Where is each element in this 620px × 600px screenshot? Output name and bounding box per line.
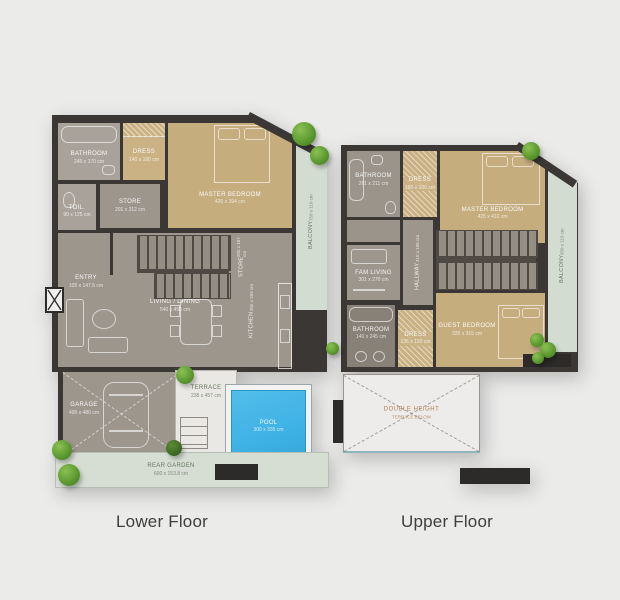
room-label: BATHROOM 140 x 245 cm bbox=[347, 327, 395, 341]
room-name: DRESS bbox=[123, 149, 165, 157]
sink-icon bbox=[355, 351, 367, 362]
room-label: MASTER BEDROOM 425 x 410 cm bbox=[440, 207, 545, 221]
upper-floor-caption: Upper Floor bbox=[347, 512, 547, 532]
room-name: GUEST BEDROOM bbox=[436, 323, 498, 331]
tree-icon bbox=[522, 142, 540, 160]
room-name: FAM LIVING bbox=[347, 270, 400, 278]
pillow-icon bbox=[522, 308, 540, 318]
upper-hall bbox=[347, 220, 400, 242]
car-windshield bbox=[109, 394, 143, 396]
room-toilet: TOIL. 90 x 125 cm bbox=[58, 184, 96, 230]
sofa-icon bbox=[351, 249, 387, 264]
room-master-bedroom: MASTER BEDROOM 420 x 394 cm bbox=[168, 123, 292, 228]
room-label: TOIL. 90 x 125 cm bbox=[58, 205, 96, 219]
toilet-icon bbox=[63, 192, 75, 208]
room-label: DOUBLE HEIGHT TERRACE BELOW bbox=[344, 406, 479, 419]
room-dims: 301 x 270 cm bbox=[347, 277, 400, 284]
room-name: BATHROOM bbox=[58, 151, 120, 159]
room-dims: 205 x 187 cm bbox=[236, 233, 248, 257]
room-label: FAM LIVING 301 x 270 cm bbox=[347, 270, 400, 284]
room-dress-lower: DRESS 135 x 120 cm bbox=[398, 310, 433, 367]
pillow-icon bbox=[218, 128, 240, 140]
room-bathroom-lower: BATHROOM 140 x 245 cm bbox=[347, 305, 395, 367]
bathtub-icon bbox=[349, 159, 364, 201]
bathtub-icon bbox=[61, 126, 117, 143]
room-name: KITCHEN bbox=[249, 311, 256, 337]
rear-garden: REAR GARDEN 600 x 153.8 cm bbox=[55, 452, 329, 488]
room-name: STORE bbox=[100, 199, 160, 207]
room-label: BALCONY 950 x 110 cm bbox=[548, 159, 577, 352]
toilet-icon bbox=[385, 201, 396, 214]
room-dims: TERRACE BELOW bbox=[344, 414, 479, 420]
room-label: HALLWAY 410 x 108 cm bbox=[403, 220, 433, 305]
double-height-void: DOUBLE HEIGHT TERRACE BELOW bbox=[343, 374, 480, 453]
room-name: GARAGE bbox=[63, 402, 105, 410]
room-dims: 300 x 335 cm bbox=[232, 427, 305, 434]
room-name: ENTRY bbox=[60, 275, 112, 283]
room-dress-top: DRESS 180 x 200 cm bbox=[403, 151, 437, 217]
room-fam-living: FAM LIVING 301 x 270 cm bbox=[347, 245, 400, 300]
chair-icon bbox=[170, 305, 180, 317]
stairs bbox=[154, 273, 231, 299]
room-kitchen: KITCHEN 305 x 258 cm bbox=[242, 283, 262, 339]
room-dims: 305 x 258 cm bbox=[249, 284, 255, 311]
sofa-icon bbox=[66, 299, 84, 347]
car-icon bbox=[103, 382, 149, 448]
room-bathroom-top: BATHROOM 261 x 211 cm bbox=[347, 151, 400, 217]
tree-icon bbox=[326, 342, 339, 355]
sink-icon bbox=[373, 351, 385, 362]
dining-table-icon bbox=[180, 299, 212, 345]
lower-floor-caption: Lower Floor bbox=[62, 512, 262, 532]
coffee-table-icon bbox=[92, 309, 116, 329]
steps-icon bbox=[180, 417, 208, 449]
room-dims: 320 x 315 cm bbox=[436, 331, 498, 338]
room-name: HALLWAY bbox=[415, 262, 422, 289]
car-windshield bbox=[109, 430, 143, 432]
room-label: GARAGE 495 x 480 cm bbox=[63, 402, 105, 416]
room-name: MASTER BEDROOM bbox=[440, 207, 545, 215]
wall-stub bbox=[215, 464, 258, 480]
room-dims: 420 x 394 cm bbox=[168, 199, 292, 206]
wall-stub bbox=[460, 468, 530, 484]
room-dims: 180 x 200 cm bbox=[403, 185, 437, 192]
utility-box bbox=[45, 287, 64, 313]
room-label: DRESS 180 x 200 cm bbox=[403, 177, 437, 191]
room-store: STORE 201 x 212 cm bbox=[100, 184, 160, 228]
room-dims: 105 x 147.5 cm bbox=[60, 283, 112, 290]
x-mark-icon bbox=[47, 289, 62, 311]
room-name: MASTER BEDROOM bbox=[168, 192, 292, 200]
room-label: DRESS 140 x 160 cm bbox=[123, 149, 165, 163]
room-dims: 950 x 110 cm bbox=[560, 228, 566, 255]
wall-stub bbox=[333, 400, 343, 443]
room-dims: 135 x 120 cm bbox=[398, 339, 433, 346]
pillow-icon bbox=[486, 156, 508, 167]
tree-icon bbox=[310, 146, 329, 165]
stove-icon bbox=[280, 295, 290, 309]
room-name: DRESS bbox=[403, 177, 437, 185]
tree-icon bbox=[52, 440, 72, 460]
bathtub-icon bbox=[349, 307, 393, 322]
chair-icon bbox=[212, 305, 222, 317]
stairs bbox=[436, 230, 538, 258]
room-dims: 425 x 410 cm bbox=[440, 214, 545, 221]
room-label: GUEST BEDROOM 320 x 315 cm bbox=[436, 323, 498, 337]
room-dims: 410 x 108 cm bbox=[415, 235, 421, 262]
floorplan-canvas: { "captions": { "lower": "Lower Floor", … bbox=[0, 0, 620, 600]
tree-icon bbox=[292, 122, 316, 146]
room-name: BALCONY bbox=[559, 255, 566, 283]
room-label: POOL 300 x 335 cm bbox=[232, 420, 305, 434]
stairs bbox=[137, 235, 231, 271]
sink-icon bbox=[371, 155, 383, 165]
sink-icon bbox=[280, 329, 290, 343]
room-name: POOL bbox=[232, 420, 305, 428]
interior-wall bbox=[110, 233, 113, 275]
room-name: BATHROOM bbox=[347, 327, 395, 335]
room-bathroom: BATHROOM 245 x 170 cm bbox=[58, 123, 120, 180]
room-dims: 140 x 160 cm bbox=[123, 157, 165, 164]
chair-icon bbox=[170, 325, 180, 337]
room-label: BATHROOM 245 x 170 cm bbox=[58, 151, 120, 165]
pillow-icon bbox=[244, 128, 266, 140]
room-dress: DRESS 140 x 160 cm bbox=[123, 123, 165, 180]
room-dims: 750 x 110 cm bbox=[309, 194, 315, 221]
room-entry-label: ENTRY 105 x 147.5 cm bbox=[60, 275, 112, 289]
room-stair-store: STORE 205 x 187 cm bbox=[232, 233, 252, 277]
room-dims: 90 x 125 cm bbox=[58, 212, 96, 219]
pillow-icon bbox=[502, 308, 520, 318]
room-name: STORE bbox=[239, 257, 246, 277]
tree-icon bbox=[176, 366, 194, 384]
sink-icon bbox=[102, 165, 115, 175]
sofa-icon bbox=[88, 337, 128, 353]
room-dims: 495 x 480 cm bbox=[63, 410, 105, 417]
stairs bbox=[436, 262, 538, 290]
tree-icon bbox=[166, 440, 182, 456]
room-label: MASTER BEDROOM 420 x 394 cm bbox=[168, 192, 292, 206]
room-name: DRESS bbox=[398, 332, 433, 340]
lower-floor-walls: BATHROOM 245 x 170 cm DRESS 140 x 160 cm… bbox=[52, 115, 327, 372]
room-hallway: HALLWAY 410 x 108 cm bbox=[403, 220, 433, 305]
room-label: KITCHEN 305 x 258 cm bbox=[242, 283, 262, 339]
room-name: BALCONY bbox=[308, 221, 315, 249]
room-label: DRESS 135 x 120 cm bbox=[398, 332, 433, 346]
room-label: STORE 205 x 187 cm bbox=[232, 233, 252, 277]
room-dims: 140 x 245 cm bbox=[347, 334, 395, 341]
plant-icon bbox=[532, 352, 544, 364]
chair-icon bbox=[212, 325, 222, 337]
room-name: DOUBLE HEIGHT bbox=[344, 406, 479, 414]
upper-floor-plan: BATHROOM 261 x 211 cm DRESS 180 x 200 cm… bbox=[337, 142, 580, 472]
room-label: STORE 201 x 212 cm bbox=[100, 199, 160, 213]
room-dims: 201 x 212 cm bbox=[100, 207, 160, 214]
lower-floor-plan: BATHROOM 245 x 170 cm DRESS 140 x 160 cm… bbox=[42, 112, 330, 492]
upper-balcony: BALCONY 950 x 110 cm bbox=[548, 159, 577, 352]
tree-icon bbox=[58, 464, 80, 486]
wardrobe-icon bbox=[123, 123, 165, 137]
tv-icon bbox=[353, 289, 385, 291]
room-garage: GARAGE 495 x 480 cm bbox=[58, 372, 182, 459]
